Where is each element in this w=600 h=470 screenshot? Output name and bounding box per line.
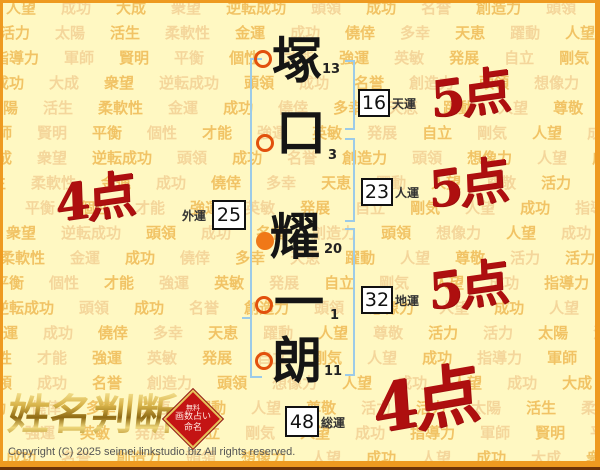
bg-word: 英敏 bbox=[394, 47, 424, 68]
bracket-left-tick-mid bbox=[242, 317, 250, 319]
soun-score-stamp: 4点 bbox=[370, 359, 479, 444]
bg-word: 活力 bbox=[483, 322, 513, 343]
bg-word: 衆望 bbox=[37, 147, 67, 168]
bg-word: 柔軟性 bbox=[165, 22, 210, 43]
tenun-score-stamp: 5点 bbox=[430, 64, 510, 125]
bg-word: 軍師 bbox=[480, 422, 510, 443]
bg-word: 天恵 bbox=[321, 172, 351, 193]
bg-word: 創造力 bbox=[342, 147, 387, 168]
bg-word: 成功 bbox=[125, 247, 155, 268]
stroke-count: 11 bbox=[324, 364, 342, 379]
bracket-chiun-tick-top bbox=[345, 228, 353, 230]
gaiun-value-box: 25 bbox=[212, 200, 246, 230]
bg-word: 才能 bbox=[37, 347, 67, 368]
bg-word: 金運 bbox=[70, 247, 100, 268]
bg-word: 発展 bbox=[202, 347, 232, 368]
bg-word: 人望 bbox=[549, 297, 579, 318]
bg-word: 活生 bbox=[43, 97, 73, 118]
bg-word: 逆転成功 bbox=[159, 72, 219, 93]
bg-word: 強運 bbox=[159, 272, 189, 293]
gaiun-value: 25 bbox=[217, 204, 241, 226]
bg-word: 才能 bbox=[202, 122, 232, 143]
bg-word: 人望 bbox=[537, 147, 567, 168]
bracket-jinun-vline bbox=[353, 138, 355, 222]
bg-word: 衆望 bbox=[6, 222, 36, 243]
bg-word: 指導力 bbox=[0, 47, 39, 68]
bg-word: 金運 bbox=[235, 22, 265, 43]
gaiun-label: 外運 bbox=[182, 207, 206, 224]
bg-word: 想像力 bbox=[436, 222, 481, 243]
bg-word: 賢明 bbox=[119, 47, 149, 68]
bg-word: 名誉 bbox=[189, 297, 219, 318]
bg-word: 想像力 bbox=[534, 72, 579, 93]
bg-word: 剛気 bbox=[477, 122, 507, 143]
seimei-result-page: 人望成功大成衆望逆転成功頭領成功名誉創造力頭領想像力人望成功活力太陽活生柔軟性金… bbox=[0, 0, 600, 470]
char-marker-icon bbox=[256, 134, 274, 152]
tenun-label: 天運 bbox=[392, 95, 416, 112]
bg-word: 人望 bbox=[367, 347, 397, 368]
jinun-value: 23 bbox=[365, 181, 389, 203]
bg-word: 頭領 bbox=[217, 372, 247, 393]
bg-word: 英敏 bbox=[147, 347, 177, 368]
bg-word: 僥倖 bbox=[345, 22, 375, 43]
frame-top-border bbox=[0, 0, 600, 3]
name-char-glyph: 塚 bbox=[272, 36, 322, 86]
bg-word: 平衡 bbox=[0, 272, 24, 293]
jinun-label: 人運 bbox=[395, 184, 419, 201]
bg-word: 柔軟性 bbox=[0, 247, 45, 268]
bg-word: 自立 bbox=[504, 47, 534, 68]
bg-word: 活力 bbox=[541, 172, 571, 193]
char-marker-icon bbox=[255, 352, 273, 370]
badge-line2: 画数占い bbox=[175, 412, 211, 423]
bg-word: 発展 bbox=[367, 122, 397, 143]
chiun-value: 32 bbox=[365, 289, 389, 311]
bg-word: 逆転成功 bbox=[0, 297, 54, 318]
bg-word: 尊敬 bbox=[373, 322, 403, 343]
bg-word: 活力 bbox=[510, 247, 540, 268]
soun-label: 総運 bbox=[321, 414, 345, 431]
bg-word: 太陽 bbox=[538, 322, 568, 343]
bg-word: 個性 bbox=[147, 122, 177, 143]
bg-word: 金運 bbox=[168, 97, 198, 118]
bg-word: 柔軟性 bbox=[98, 97, 143, 118]
tenun-value: 16 bbox=[362, 92, 386, 114]
bg-word: 活生 bbox=[526, 397, 556, 418]
bg-word: 躍動 bbox=[510, 22, 540, 43]
chiun-score-stamp: 5点 bbox=[428, 256, 508, 317]
bg-word: 成功 bbox=[43, 322, 73, 343]
bracket-tenun-tick-bottom bbox=[345, 128, 353, 130]
badge-text: 無料 画数占い 命名 bbox=[174, 400, 212, 438]
gaiun-score-stamp: 4点 bbox=[55, 168, 135, 229]
site-logo[interactable]: 姓名判断 bbox=[5, 390, 178, 440]
jinun-score-stamp: 5点 bbox=[428, 154, 508, 215]
bg-word: 太陽 bbox=[55, 22, 85, 43]
bg-word: 成功 bbox=[520, 197, 550, 218]
bg-word: 強運 bbox=[92, 347, 122, 368]
bg-word: 才能 bbox=[135, 197, 165, 218]
chiun-value-box: 32 bbox=[361, 286, 393, 314]
stroke-count: 20 bbox=[324, 242, 342, 257]
bg-word: 頭領 bbox=[244, 72, 274, 93]
bg-word: 人望 bbox=[251, 397, 281, 418]
bg-word: 活力 bbox=[565, 247, 595, 268]
bg-word: 活力 bbox=[0, 22, 30, 43]
bg-word: 人望 bbox=[565, 22, 595, 43]
soun-value: 48 bbox=[290, 411, 314, 433]
name-char-glyph: 口 bbox=[276, 108, 326, 158]
bg-word: 僥倖 bbox=[211, 172, 241, 193]
bg-word: 人望 bbox=[532, 122, 562, 143]
jinun-value-box: 23 bbox=[361, 178, 393, 206]
bg-word: 人望 bbox=[400, 247, 430, 268]
bg-word: 自立 bbox=[324, 272, 354, 293]
bg-word: 衆望 bbox=[104, 72, 134, 93]
bg-word: 成功 bbox=[156, 172, 186, 193]
bg-word: 人望 bbox=[506, 222, 536, 243]
bg-word: 個性 bbox=[49, 272, 79, 293]
bg-word: 多幸 bbox=[400, 22, 430, 43]
badge-line3: 命名 bbox=[184, 423, 202, 434]
bracket-chiun-tick-bottom bbox=[345, 374, 353, 376]
bg-word: 平衡 bbox=[92, 122, 122, 143]
bg-word: 英敏 bbox=[214, 272, 244, 293]
bracket-jinun-tick-top bbox=[345, 138, 353, 140]
bg-word: 賢明 bbox=[37, 122, 67, 143]
bg-word: 平衡 bbox=[174, 47, 204, 68]
stroke-count: 3 bbox=[328, 148, 337, 163]
bg-word: 僥倖 bbox=[180, 247, 210, 268]
bracket-jinun-tick-bottom bbox=[345, 220, 353, 222]
tenun-value-box: 16 bbox=[358, 89, 390, 117]
bg-word: 指導力 bbox=[477, 347, 522, 368]
bg-word: 躍動 bbox=[345, 247, 375, 268]
bg-word: 平衡 bbox=[25, 197, 55, 218]
bg-word: 成功 bbox=[232, 147, 262, 168]
bg-word: 成功 bbox=[134, 297, 164, 318]
bg-word: 尊敬 bbox=[553, 97, 583, 118]
bg-word: 指導力 bbox=[544, 272, 589, 293]
bg-word: 頭領 bbox=[79, 297, 109, 318]
name-char-glyph: 一 bbox=[274, 278, 324, 328]
bg-word: 僥倖 bbox=[98, 322, 128, 343]
stroke-count: 1 bbox=[330, 308, 339, 323]
bg-word: 頭領 bbox=[381, 222, 411, 243]
soun-value-box: 48 bbox=[285, 406, 319, 437]
bg-word: 天恵 bbox=[208, 322, 238, 343]
chiun-label: 地運 bbox=[395, 292, 419, 309]
copyright-text: Copyright (C) 2025 seimei.linkstudio.biz… bbox=[8, 446, 295, 458]
bg-word: 成功 bbox=[223, 97, 253, 118]
bg-word: 活力 bbox=[428, 322, 458, 343]
bg-word: 才能 bbox=[104, 272, 134, 293]
bracket-chiun-vline bbox=[353, 228, 355, 376]
bg-word: 頭領 bbox=[177, 147, 207, 168]
frame-left-border bbox=[0, 0, 3, 470]
bg-word: 大成 bbox=[49, 72, 79, 93]
stroke-count: 13 bbox=[322, 62, 340, 77]
bg-word: 軍師 bbox=[64, 47, 94, 68]
bg-word: 活生 bbox=[110, 22, 140, 43]
bracket-tenun-tick-top bbox=[345, 60, 353, 62]
bg-word: 成功 bbox=[561, 222, 591, 243]
frame-right-border bbox=[595, 0, 600, 470]
bg-word: 多幸 bbox=[266, 172, 296, 193]
char-marker-icon bbox=[254, 50, 272, 68]
bg-word: 軍師 bbox=[547, 347, 577, 368]
bg-word: 成功 bbox=[507, 372, 537, 393]
bg-word: 多幸 bbox=[153, 322, 183, 343]
char-marker-icon bbox=[255, 296, 273, 314]
bg-word: 大成 bbox=[562, 372, 592, 393]
bg-word: 剛気 bbox=[559, 47, 589, 68]
bg-word: 成功 bbox=[0, 72, 24, 93]
bg-word: 頭領 bbox=[146, 222, 176, 243]
bg-word: 天恵 bbox=[455, 22, 485, 43]
bracket-left-tick-bottom bbox=[250, 376, 262, 378]
name-char-glyph: 耀 bbox=[270, 212, 320, 262]
bg-word: 剛気 bbox=[245, 422, 275, 443]
bracket-tenun-vline bbox=[353, 60, 355, 130]
name-char-glyph: 朗 bbox=[272, 336, 322, 386]
bg-word: 賢明 bbox=[535, 422, 565, 443]
bracket-left-vline bbox=[250, 58, 252, 378]
